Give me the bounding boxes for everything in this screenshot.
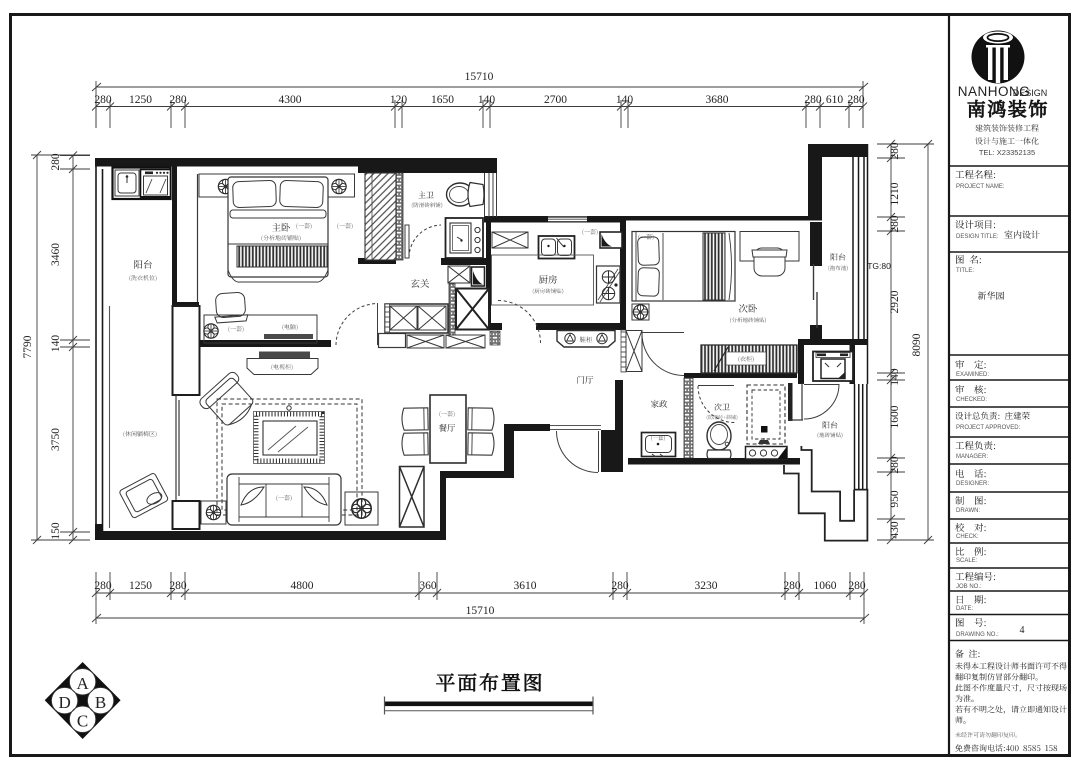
svg-text:PROJECT APPROVED:: PROJECT APPROVED: bbox=[956, 425, 1021, 431]
svg-text:1250: 1250 bbox=[129, 94, 152, 106]
svg-text:3460: 3460 bbox=[50, 243, 62, 266]
svg-text:280: 280 bbox=[94, 94, 112, 106]
svg-text:1600: 1600 bbox=[889, 405, 901, 428]
svg-text:3750: 3750 bbox=[50, 428, 62, 451]
svg-text:4300: 4300 bbox=[279, 94, 302, 106]
svg-text:15710: 15710 bbox=[466, 605, 495, 617]
svg-text:C: C bbox=[77, 712, 88, 731]
svg-text:DATE:: DATE: bbox=[956, 606, 974, 612]
svg-text:140: 140 bbox=[50, 335, 62, 353]
svg-text:D: D bbox=[58, 693, 70, 712]
svg-text:430: 430 bbox=[889, 521, 901, 539]
svg-text:1250: 1250 bbox=[129, 580, 152, 592]
svg-text:950: 950 bbox=[889, 490, 901, 508]
svg-text:140: 140 bbox=[616, 94, 634, 106]
svg-text:JOB NO.:: JOB NO.: bbox=[956, 584, 982, 590]
svg-text:280: 280 bbox=[169, 580, 187, 592]
svg-text:2920: 2920 bbox=[889, 290, 901, 313]
svg-text:CHECKED:: CHECKED: bbox=[956, 397, 987, 403]
svg-text:TITLE:: TITLE: bbox=[956, 268, 974, 274]
svg-text:280: 280 bbox=[847, 94, 865, 106]
svg-text:360: 360 bbox=[419, 580, 437, 592]
svg-text:DRAWING NO.:: DRAWING NO.: bbox=[956, 632, 999, 638]
svg-text:280: 280 bbox=[611, 580, 629, 592]
svg-text:DESIGN: DESIGN bbox=[1013, 88, 1048, 98]
svg-text:CHECK:: CHECK: bbox=[956, 534, 979, 540]
svg-text:DESIGN TITLE:: DESIGN TITLE: bbox=[956, 234, 999, 240]
svg-text:DESIGNER:: DESIGNER: bbox=[956, 481, 989, 487]
svg-text:4: 4 bbox=[1020, 625, 1025, 636]
svg-text:610: 610 bbox=[826, 94, 844, 106]
svg-text:280: 280 bbox=[169, 94, 187, 106]
svg-text:150: 150 bbox=[50, 522, 62, 540]
svg-text:3680: 3680 bbox=[706, 94, 729, 106]
svg-text:280: 280 bbox=[50, 153, 62, 171]
svg-text:280: 280 bbox=[804, 94, 822, 106]
svg-text:280: 280 bbox=[889, 456, 901, 474]
svg-text:3230: 3230 bbox=[695, 580, 718, 592]
svg-text:TEL: X23352135: TEL: X23352135 bbox=[979, 148, 1035, 157]
svg-text:DRAWN:: DRAWN: bbox=[956, 508, 980, 514]
svg-text:280: 280 bbox=[889, 215, 901, 233]
svg-text:140: 140 bbox=[889, 368, 901, 386]
svg-text:280: 280 bbox=[889, 142, 901, 160]
svg-text:B: B bbox=[95, 693, 106, 712]
svg-text:3610: 3610 bbox=[514, 580, 537, 592]
svg-text:1060: 1060 bbox=[814, 580, 837, 592]
svg-text:PROJECT NAME:: PROJECT NAME: bbox=[956, 184, 1005, 190]
svg-text:8090: 8090 bbox=[911, 333, 923, 356]
svg-text:A: A bbox=[76, 674, 89, 693]
svg-text:280: 280 bbox=[94, 580, 112, 592]
svg-text:15710: 15710 bbox=[465, 71, 494, 83]
svg-text:1650: 1650 bbox=[431, 94, 454, 106]
svg-text:TG:80: TG:80 bbox=[867, 261, 891, 271]
svg-text:MANAGER:: MANAGER: bbox=[956, 454, 988, 460]
svg-text:280: 280 bbox=[783, 580, 801, 592]
svg-text:140: 140 bbox=[478, 94, 496, 106]
svg-text:1210: 1210 bbox=[889, 182, 901, 205]
svg-text:280: 280 bbox=[848, 580, 866, 592]
svg-text:7790: 7790 bbox=[22, 335, 34, 358]
svg-text:SCALE:: SCALE: bbox=[956, 558, 978, 564]
svg-text:120: 120 bbox=[390, 94, 408, 106]
svg-text:2700: 2700 bbox=[544, 94, 567, 106]
svg-text:EXAMINED:: EXAMINED: bbox=[956, 372, 989, 378]
svg-text:4800: 4800 bbox=[291, 580, 314, 592]
